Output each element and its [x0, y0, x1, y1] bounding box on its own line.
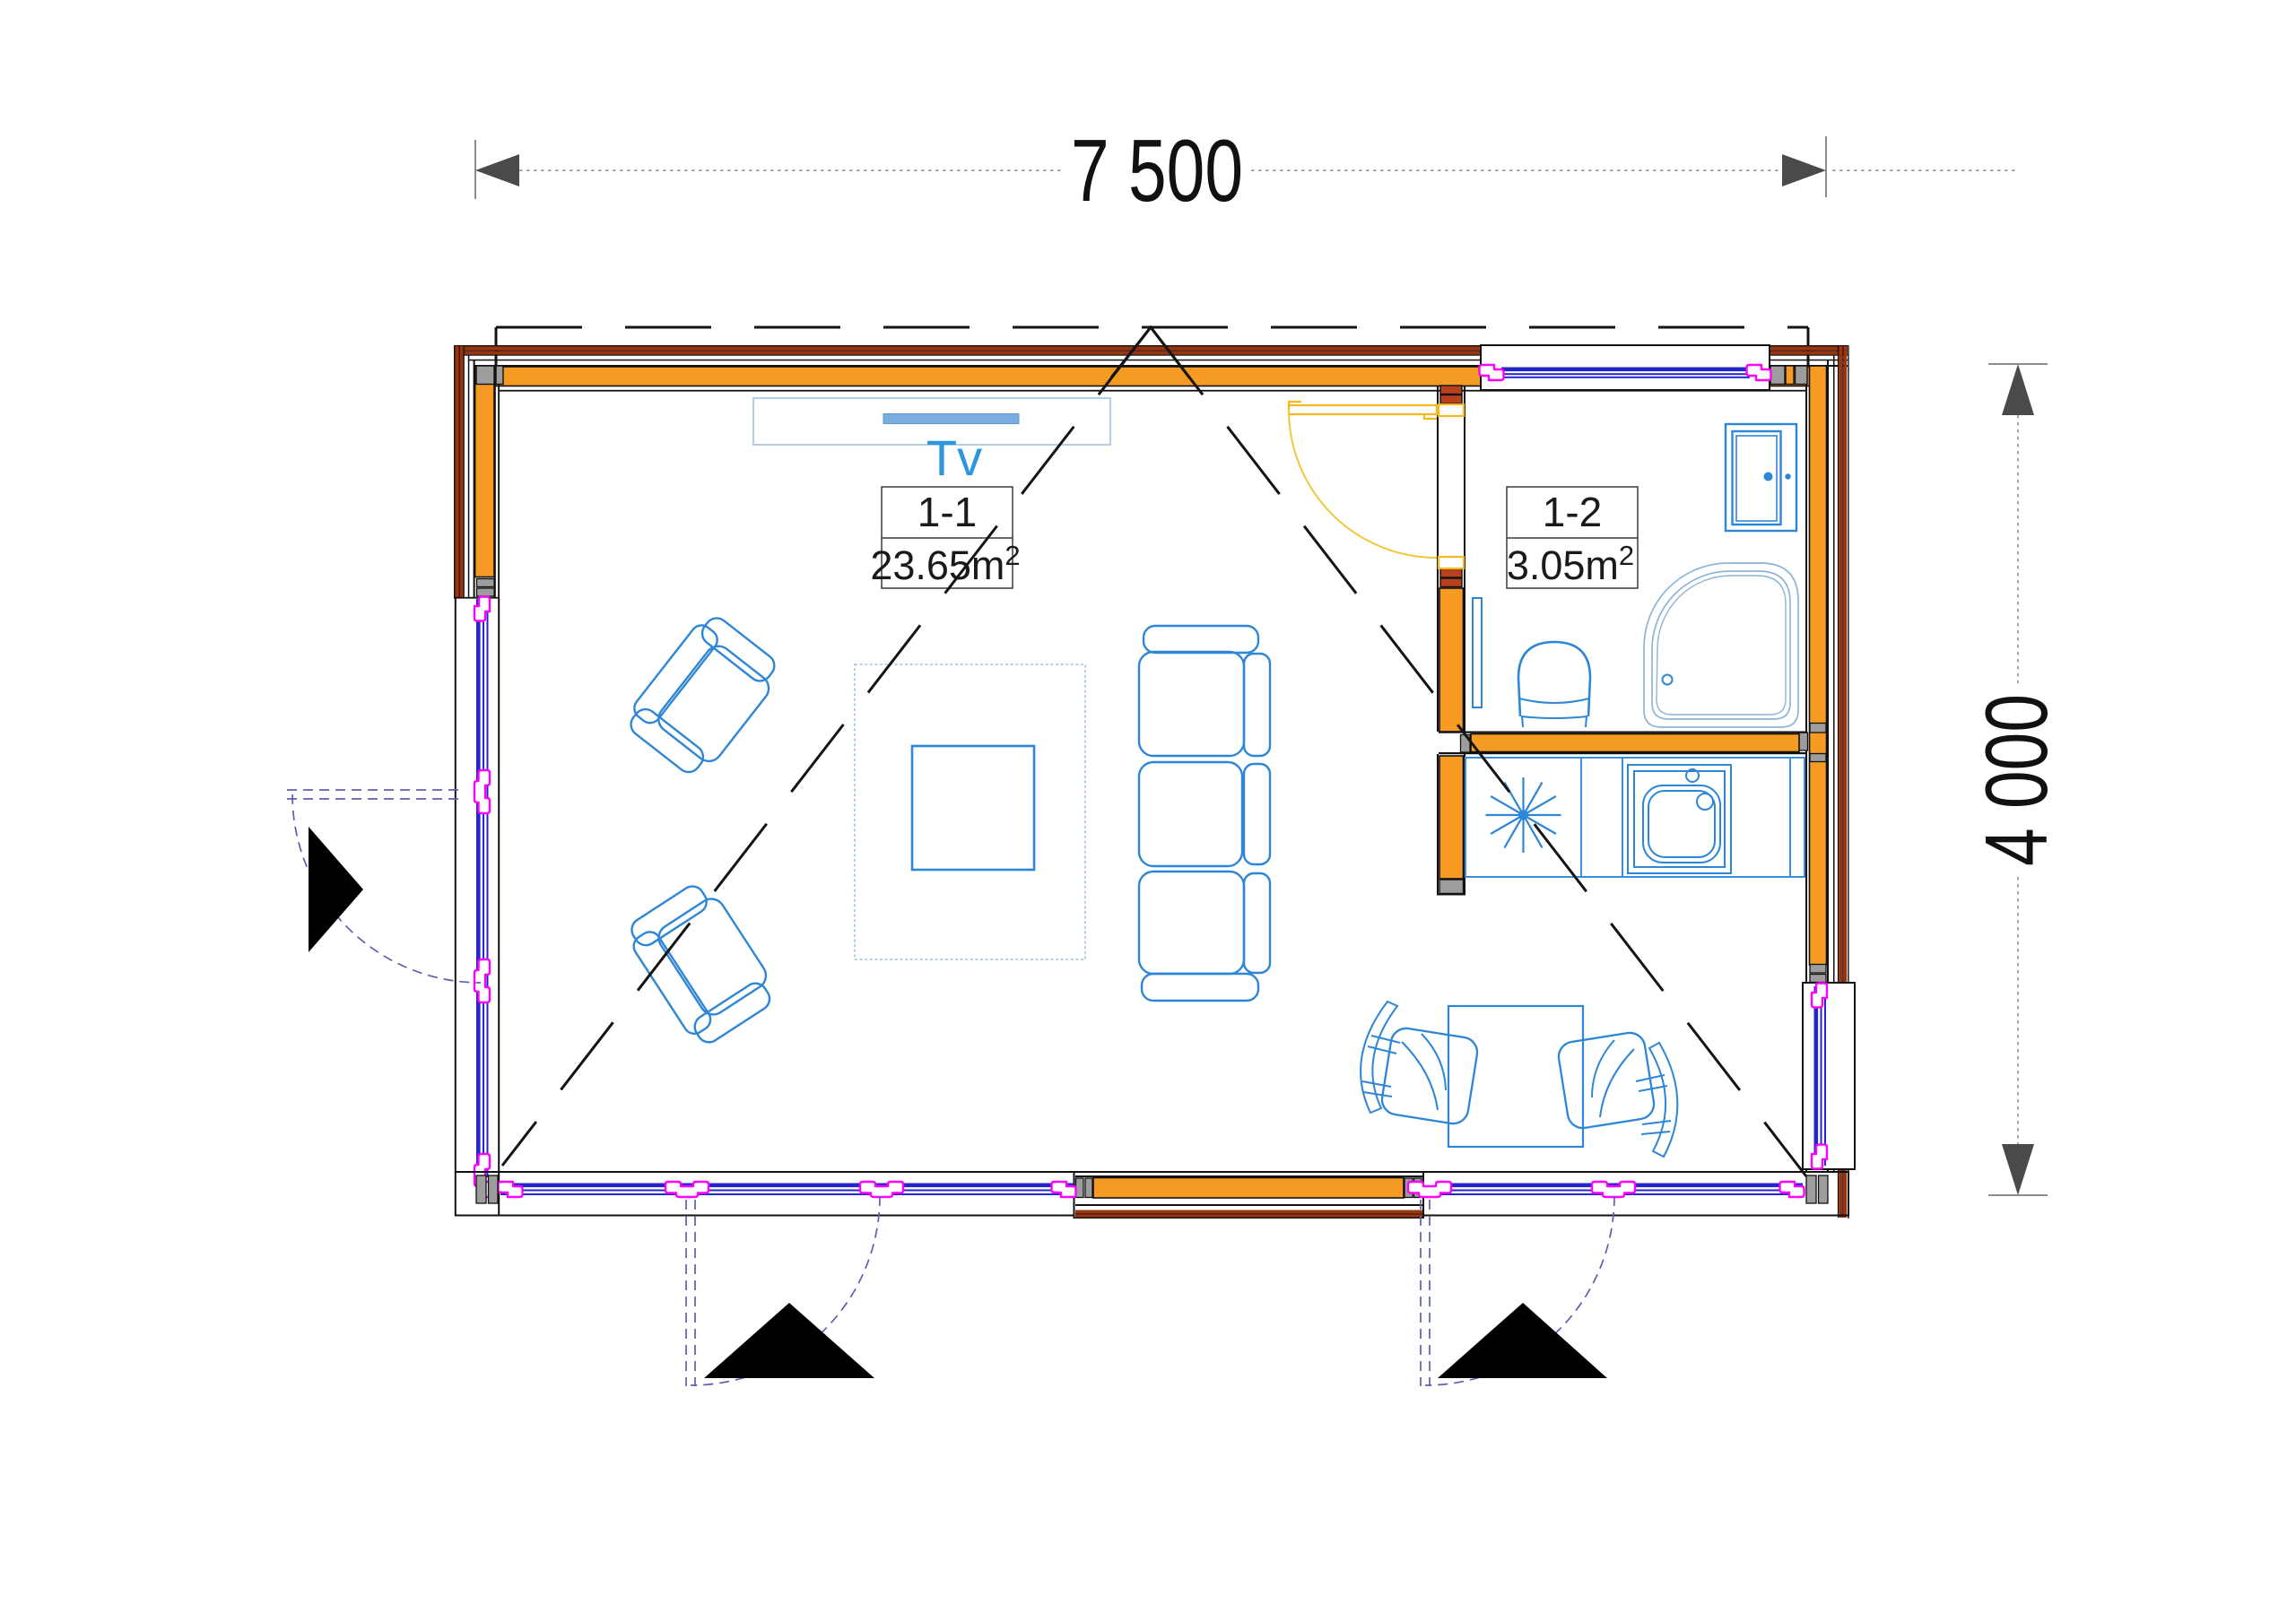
svg-text:7 500: 7 500 [1071, 121, 1243, 220]
svg-text:Tv: Tv [926, 429, 982, 486]
svg-text:4 000: 4 000 [1967, 694, 2066, 866]
svg-text:23.65m2: 23.65m2 [870, 540, 1020, 588]
svg-text:1-2: 1-2 [1543, 489, 1602, 535]
svg-text:1-1: 1-1 [918, 489, 977, 535]
svg-text:3.05m2: 3.05m2 [1507, 540, 1634, 588]
